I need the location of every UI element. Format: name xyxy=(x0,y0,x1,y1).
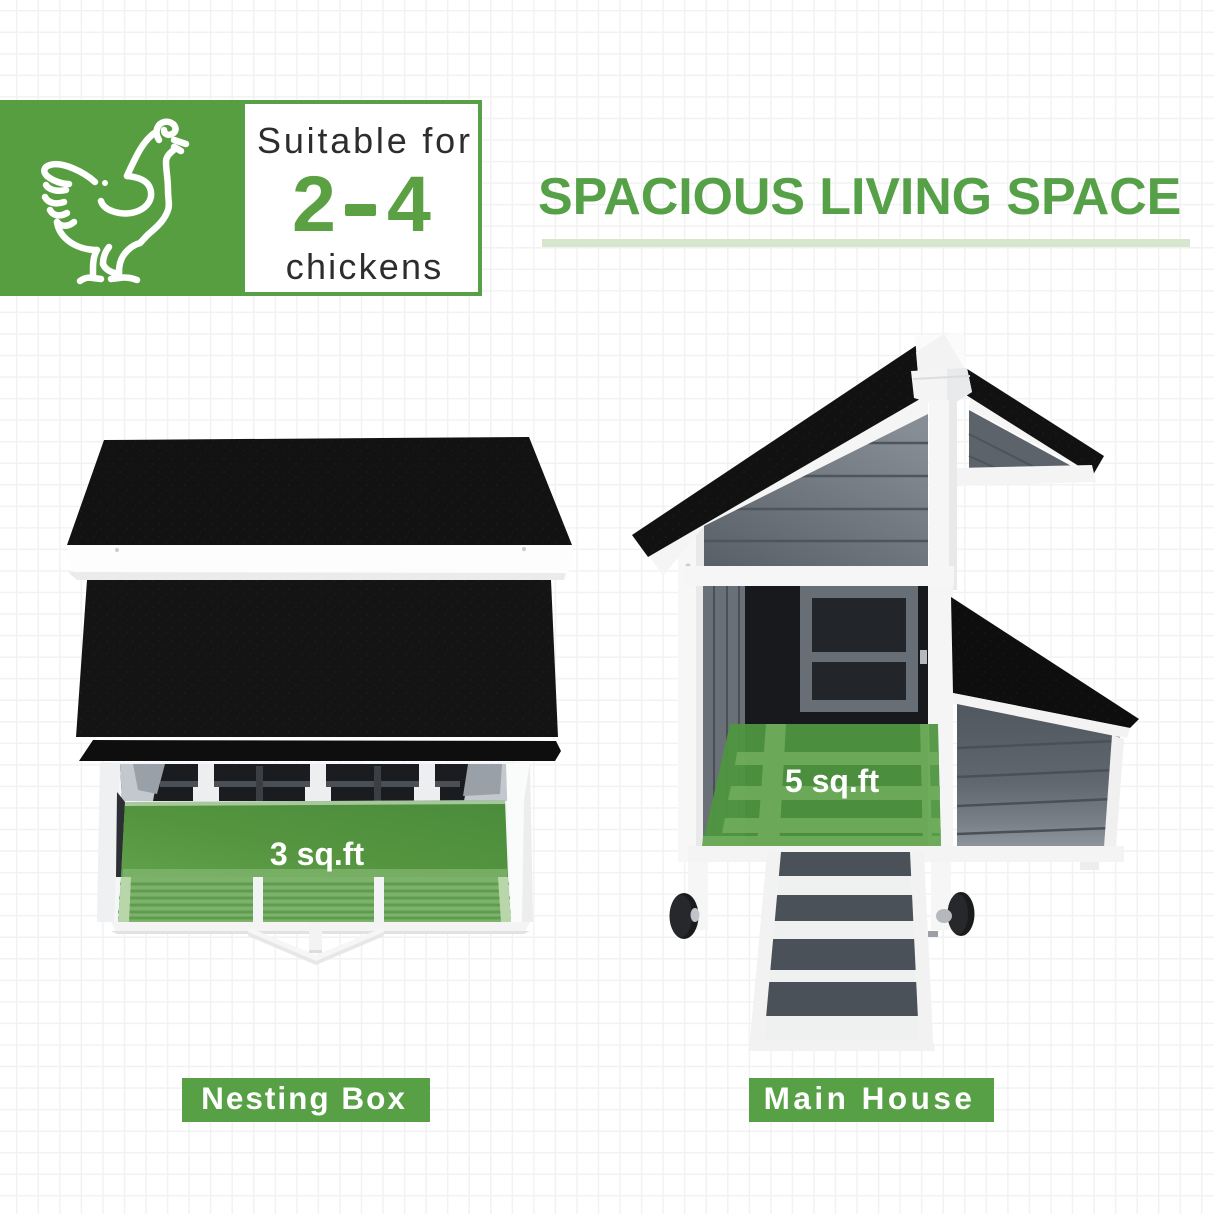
svg-text:3 sq.ft: 3 sq.ft xyxy=(270,836,365,872)
svg-text:5 sq.ft: 5 sq.ft xyxy=(785,763,880,799)
